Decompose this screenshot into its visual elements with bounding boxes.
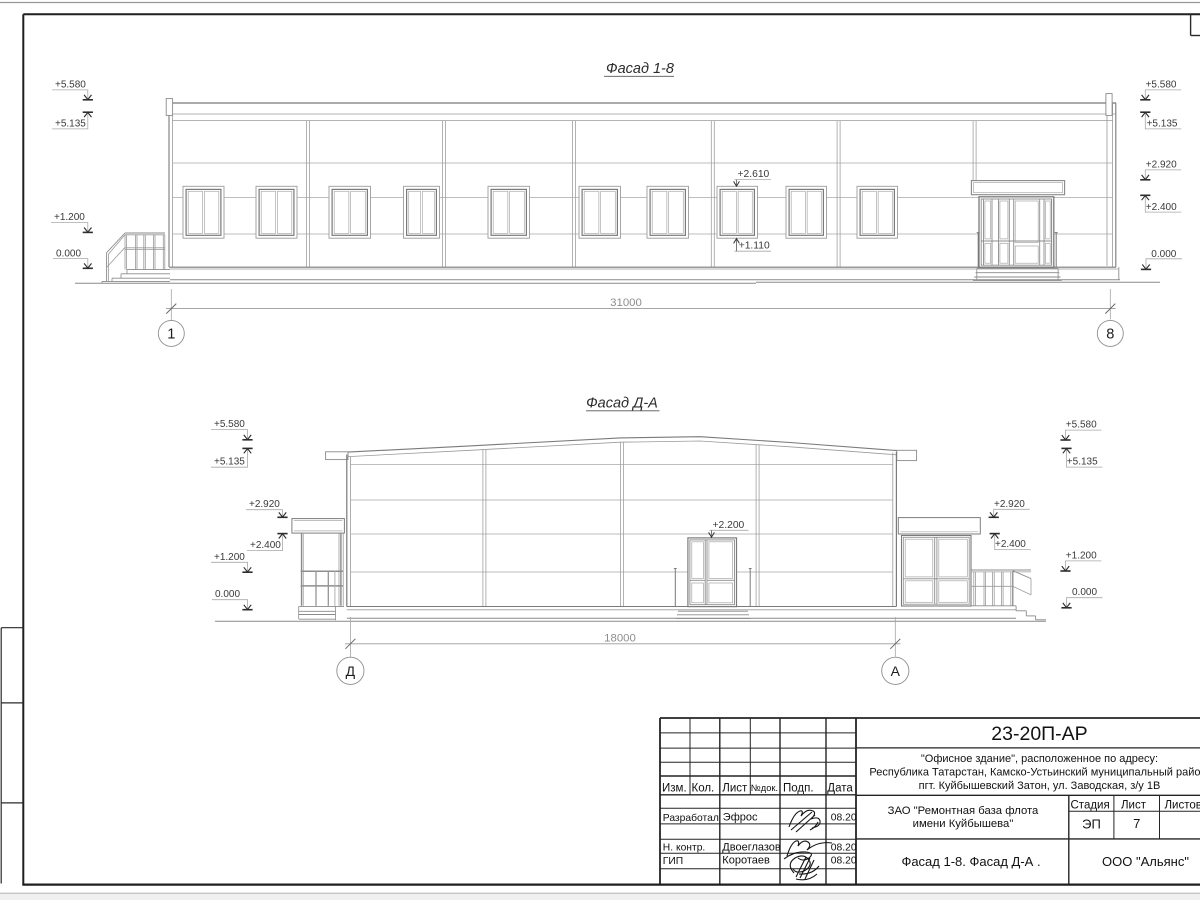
svg-text:Лист: Лист	[1121, 799, 1147, 811]
svg-text:Фасад Д-А: Фасад Д-А	[586, 395, 658, 411]
svg-text:Кол.: Кол.	[692, 783, 715, 795]
svg-text:18000: 18000	[604, 632, 636, 644]
svg-text:+1.200: +1.200	[214, 552, 245, 563]
svg-text:+5.135: +5.135	[1147, 118, 1178, 129]
svg-text:08.20: 08.20	[831, 856, 857, 867]
svg-text:Стадия: Стадия	[1071, 799, 1110, 811]
svg-text:7: 7	[1133, 816, 1140, 831]
svg-text:+1.110: +1.110	[739, 241, 770, 252]
svg-text:+1.200: +1.200	[54, 212, 85, 223]
svg-text:+2.920: +2.920	[249, 499, 280, 510]
svg-text:Разработал: Разработал	[663, 812, 719, 824]
svg-text:+2.200: +2.200	[713, 520, 745, 531]
svg-text:Коротаев: Коротаев	[722, 855, 770, 867]
svg-text:Фасад 1-8. Фасад Д-А .: Фасад 1-8. Фасад Д-А .	[901, 854, 1040, 869]
svg-text:ООО "Альянс": ООО "Альянс"	[1102, 854, 1189, 869]
svg-text:+1.200: +1.200	[1066, 550, 1097, 561]
svg-text:Листов: Листов	[1165, 799, 1200, 811]
svg-text:Лист: Лист	[722, 783, 748, 795]
svg-text:Республика Татарстан, Камско-У: Республика Татарстан, Камско-Устьинский …	[869, 767, 1200, 779]
svg-text:+2.920: +2.920	[994, 499, 1025, 510]
svg-text:Подп.: Подп.	[783, 783, 814, 795]
svg-text:+5.580: +5.580	[55, 79, 86, 90]
svg-text:+5.135: +5.135	[55, 118, 86, 129]
svg-text:31000: 31000	[610, 297, 642, 309]
svg-text:Н. контр.: Н. контр.	[663, 842, 706, 853]
svg-text:пгт. Куйбышевский Затон, ул. З: пгт. Куйбышевский Затон, ул. Заводская, …	[919, 780, 1161, 792]
svg-text:"Офисное здание", расположенно: "Офисное здание", расположенное по адрес…	[921, 753, 1158, 765]
svg-text:08.20: 08.20	[831, 842, 857, 853]
svg-text:Дата: Дата	[827, 783, 853, 795]
svg-text:+5.580: +5.580	[1066, 420, 1097, 431]
svg-text:+2.610: +2.610	[738, 169, 770, 180]
svg-text:0.000: 0.000	[215, 589, 240, 600]
svg-text:0.000: 0.000	[1151, 249, 1176, 260]
svg-text:ЭП: ЭП	[1082, 816, 1101, 831]
svg-text:23-20П-АР: 23-20П-АР	[991, 723, 1087, 745]
svg-text:1: 1	[167, 327, 175, 343]
svg-text:0.000: 0.000	[1072, 587, 1097, 598]
svg-text:0.000: 0.000	[56, 248, 81, 259]
svg-text:№док.: №док.	[751, 783, 778, 793]
svg-text:ЗАО "Ремонтная база флота: ЗАО "Ремонтная база флота	[888, 805, 1039, 817]
svg-text:+5.135: +5.135	[1067, 457, 1098, 468]
svg-text:+5.135: +5.135	[214, 457, 245, 468]
svg-text:+2.920: +2.920	[1146, 159, 1177, 170]
svg-text:имени Куйбышева": имени Куйбышева"	[913, 818, 1014, 830]
svg-text:+5.580: +5.580	[214, 419, 245, 430]
svg-text:Фасад 1-8: Фасад 1-8	[606, 61, 674, 77]
svg-text:Изм.: Изм.	[662, 783, 687, 795]
svg-text:8: 8	[1106, 327, 1114, 343]
svg-text:+2.400: +2.400	[250, 540, 281, 551]
svg-text:Эфрос: Эфрос	[723, 812, 758, 824]
svg-text:Д: Д	[346, 663, 356, 679]
svg-text:+2.400: +2.400	[1146, 202, 1177, 213]
svg-text:+2.400: +2.400	[995, 539, 1026, 550]
svg-text:А: А	[891, 663, 901, 679]
svg-text:Двоеглазов: Двоеглазов	[722, 841, 781, 853]
svg-text:+5.580: +5.580	[1146, 79, 1177, 90]
svg-text:ГИП: ГИП	[663, 856, 683, 867]
svg-text:08.20: 08.20	[831, 813, 857, 824]
